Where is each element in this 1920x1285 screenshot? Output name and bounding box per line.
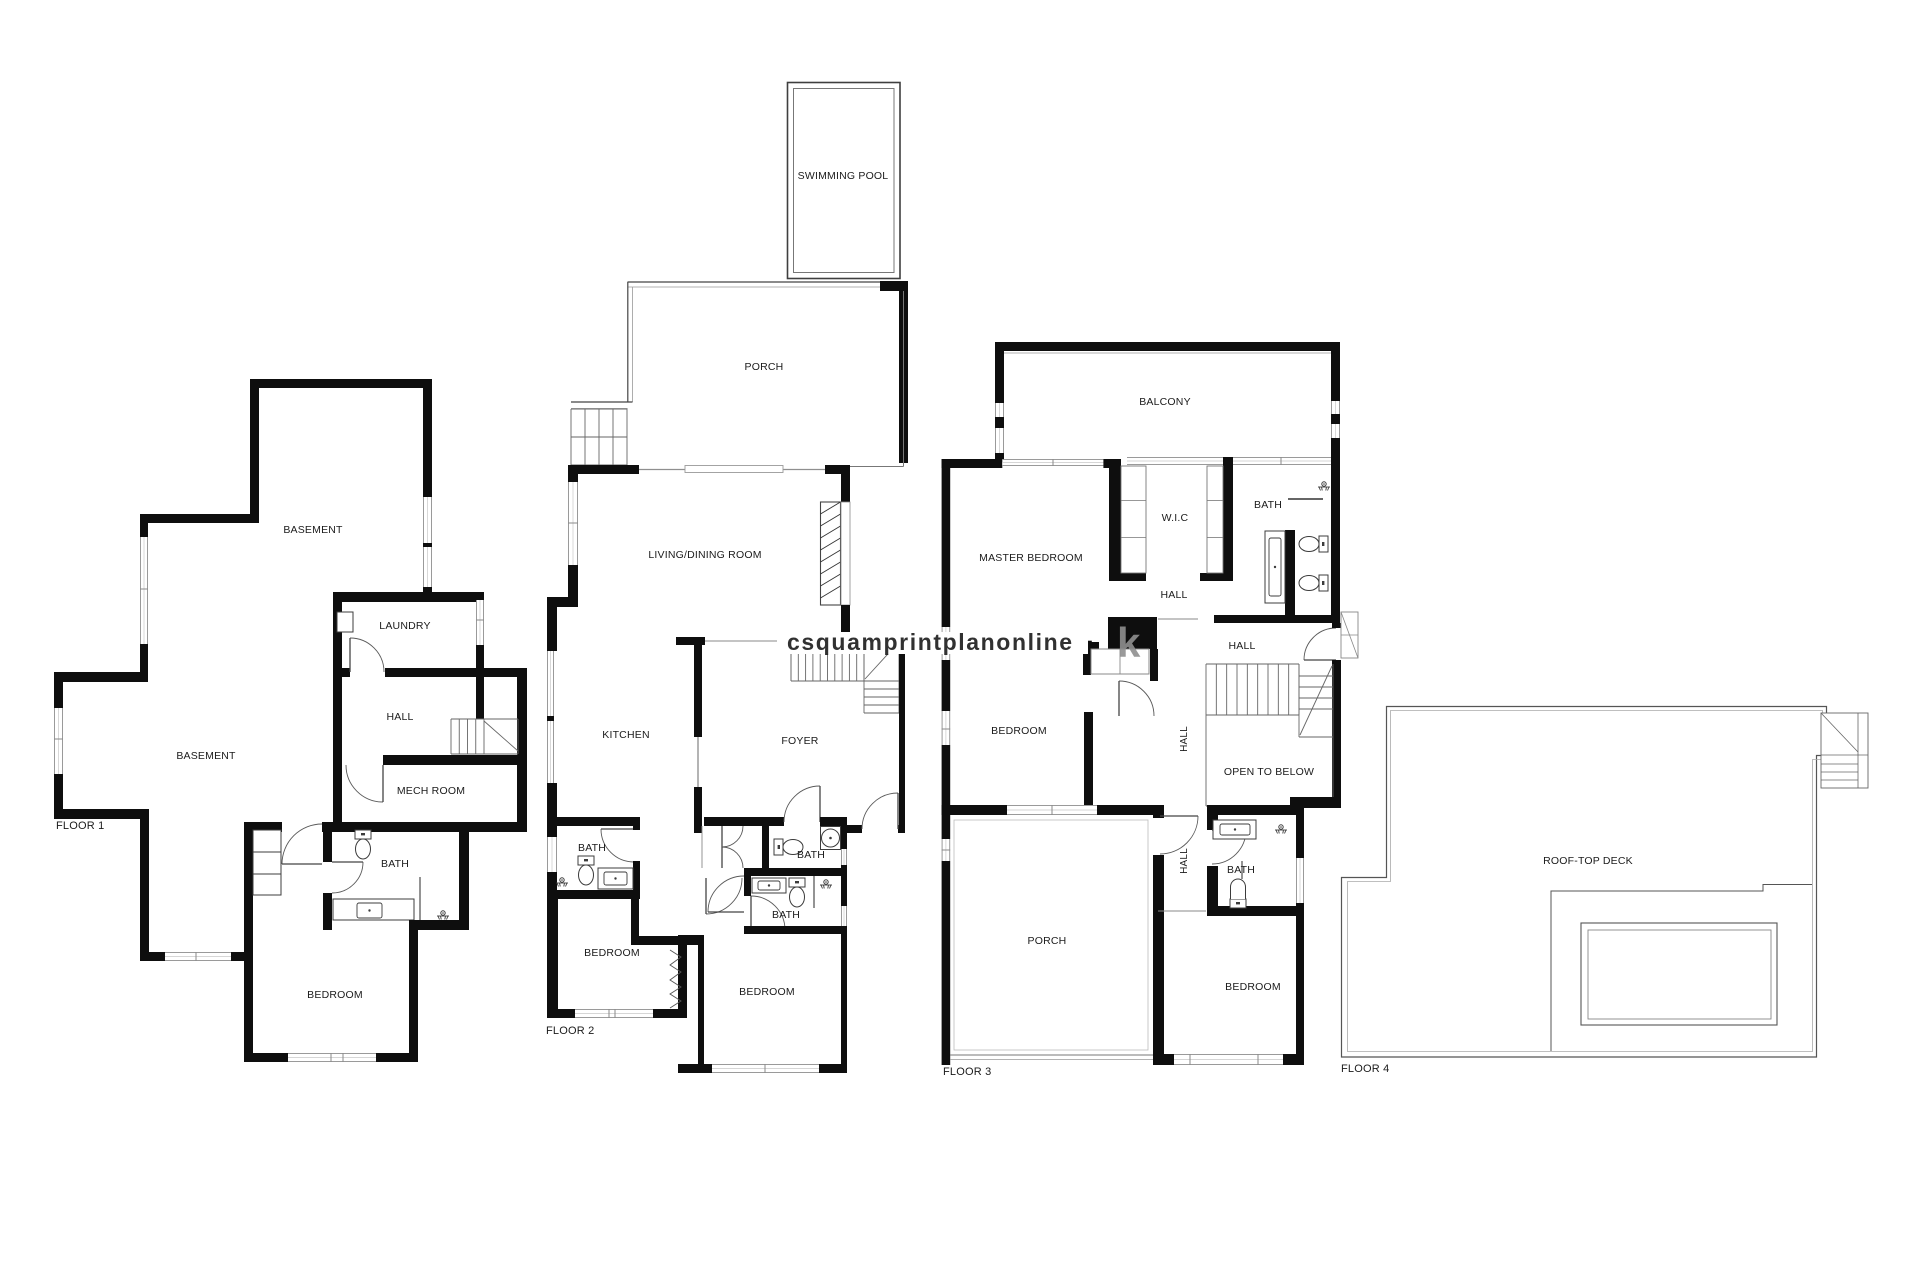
svg-text:FLOOR 2: FLOOR 2 [546,1025,594,1037]
svg-text:SWIMMING POOL: SWIMMING POOL [798,170,889,182]
svg-text:FLOOR 4: FLOOR 4 [1341,1063,1389,1075]
svg-text:KITCHEN: KITCHEN [602,729,650,741]
svg-text:BATH: BATH [1254,499,1282,511]
svg-text:OPEN TO BELOW: OPEN TO BELOW [1224,766,1314,778]
svg-text:BEDROOM: BEDROOM [1225,981,1281,993]
svg-text:k: k [1117,619,1141,666]
svg-text:BEDROOM: BEDROOM [307,989,363,1001]
svg-text:HALL: HALL [1228,640,1255,652]
svg-text:BASEMENT: BASEMENT [176,750,236,762]
svg-text:MECH ROOM: MECH ROOM [397,785,465,797]
svg-text:BEDROOM: BEDROOM [991,725,1047,737]
svg-text:FLOOR 3: FLOOR 3 [943,1066,991,1078]
svg-text:BATH: BATH [1227,864,1255,876]
svg-text:BATH: BATH [797,849,825,861]
svg-text:FLOOR 1: FLOOR 1 [56,820,104,832]
svg-text:BATH: BATH [772,909,800,921]
svg-text:BASEMENT: BASEMENT [283,524,343,536]
svg-text:BEDROOM: BEDROOM [739,986,795,998]
svg-text:BATH: BATH [578,842,606,854]
svg-text:HALL: HALL [1179,726,1190,752]
svg-text:BALCONY: BALCONY [1139,396,1191,408]
svg-text:MASTER BEDROOM: MASTER BEDROOM [979,552,1083,564]
svg-text:PORCH: PORCH [1028,935,1067,947]
svg-text:LAUNDRY: LAUNDRY [379,620,430,632]
svg-text:HALL: HALL [1179,848,1190,874]
svg-text:HALL: HALL [1160,589,1187,601]
svg-text:csquamprintplanonline: csquamprintplanonline [787,629,1074,655]
svg-text:BATH: BATH [381,858,409,870]
svg-text:ROOF-TOP DECK: ROOF-TOP DECK [1543,855,1633,867]
svg-text:LIVING/DINING ROOM: LIVING/DINING ROOM [648,549,761,561]
svg-text:PORCH: PORCH [745,361,784,373]
svg-text:HALL: HALL [386,711,413,723]
svg-text:BEDROOM: BEDROOM [584,947,640,959]
svg-text:W.I.C: W.I.C [1162,512,1189,524]
svg-text:FOYER: FOYER [781,735,818,747]
